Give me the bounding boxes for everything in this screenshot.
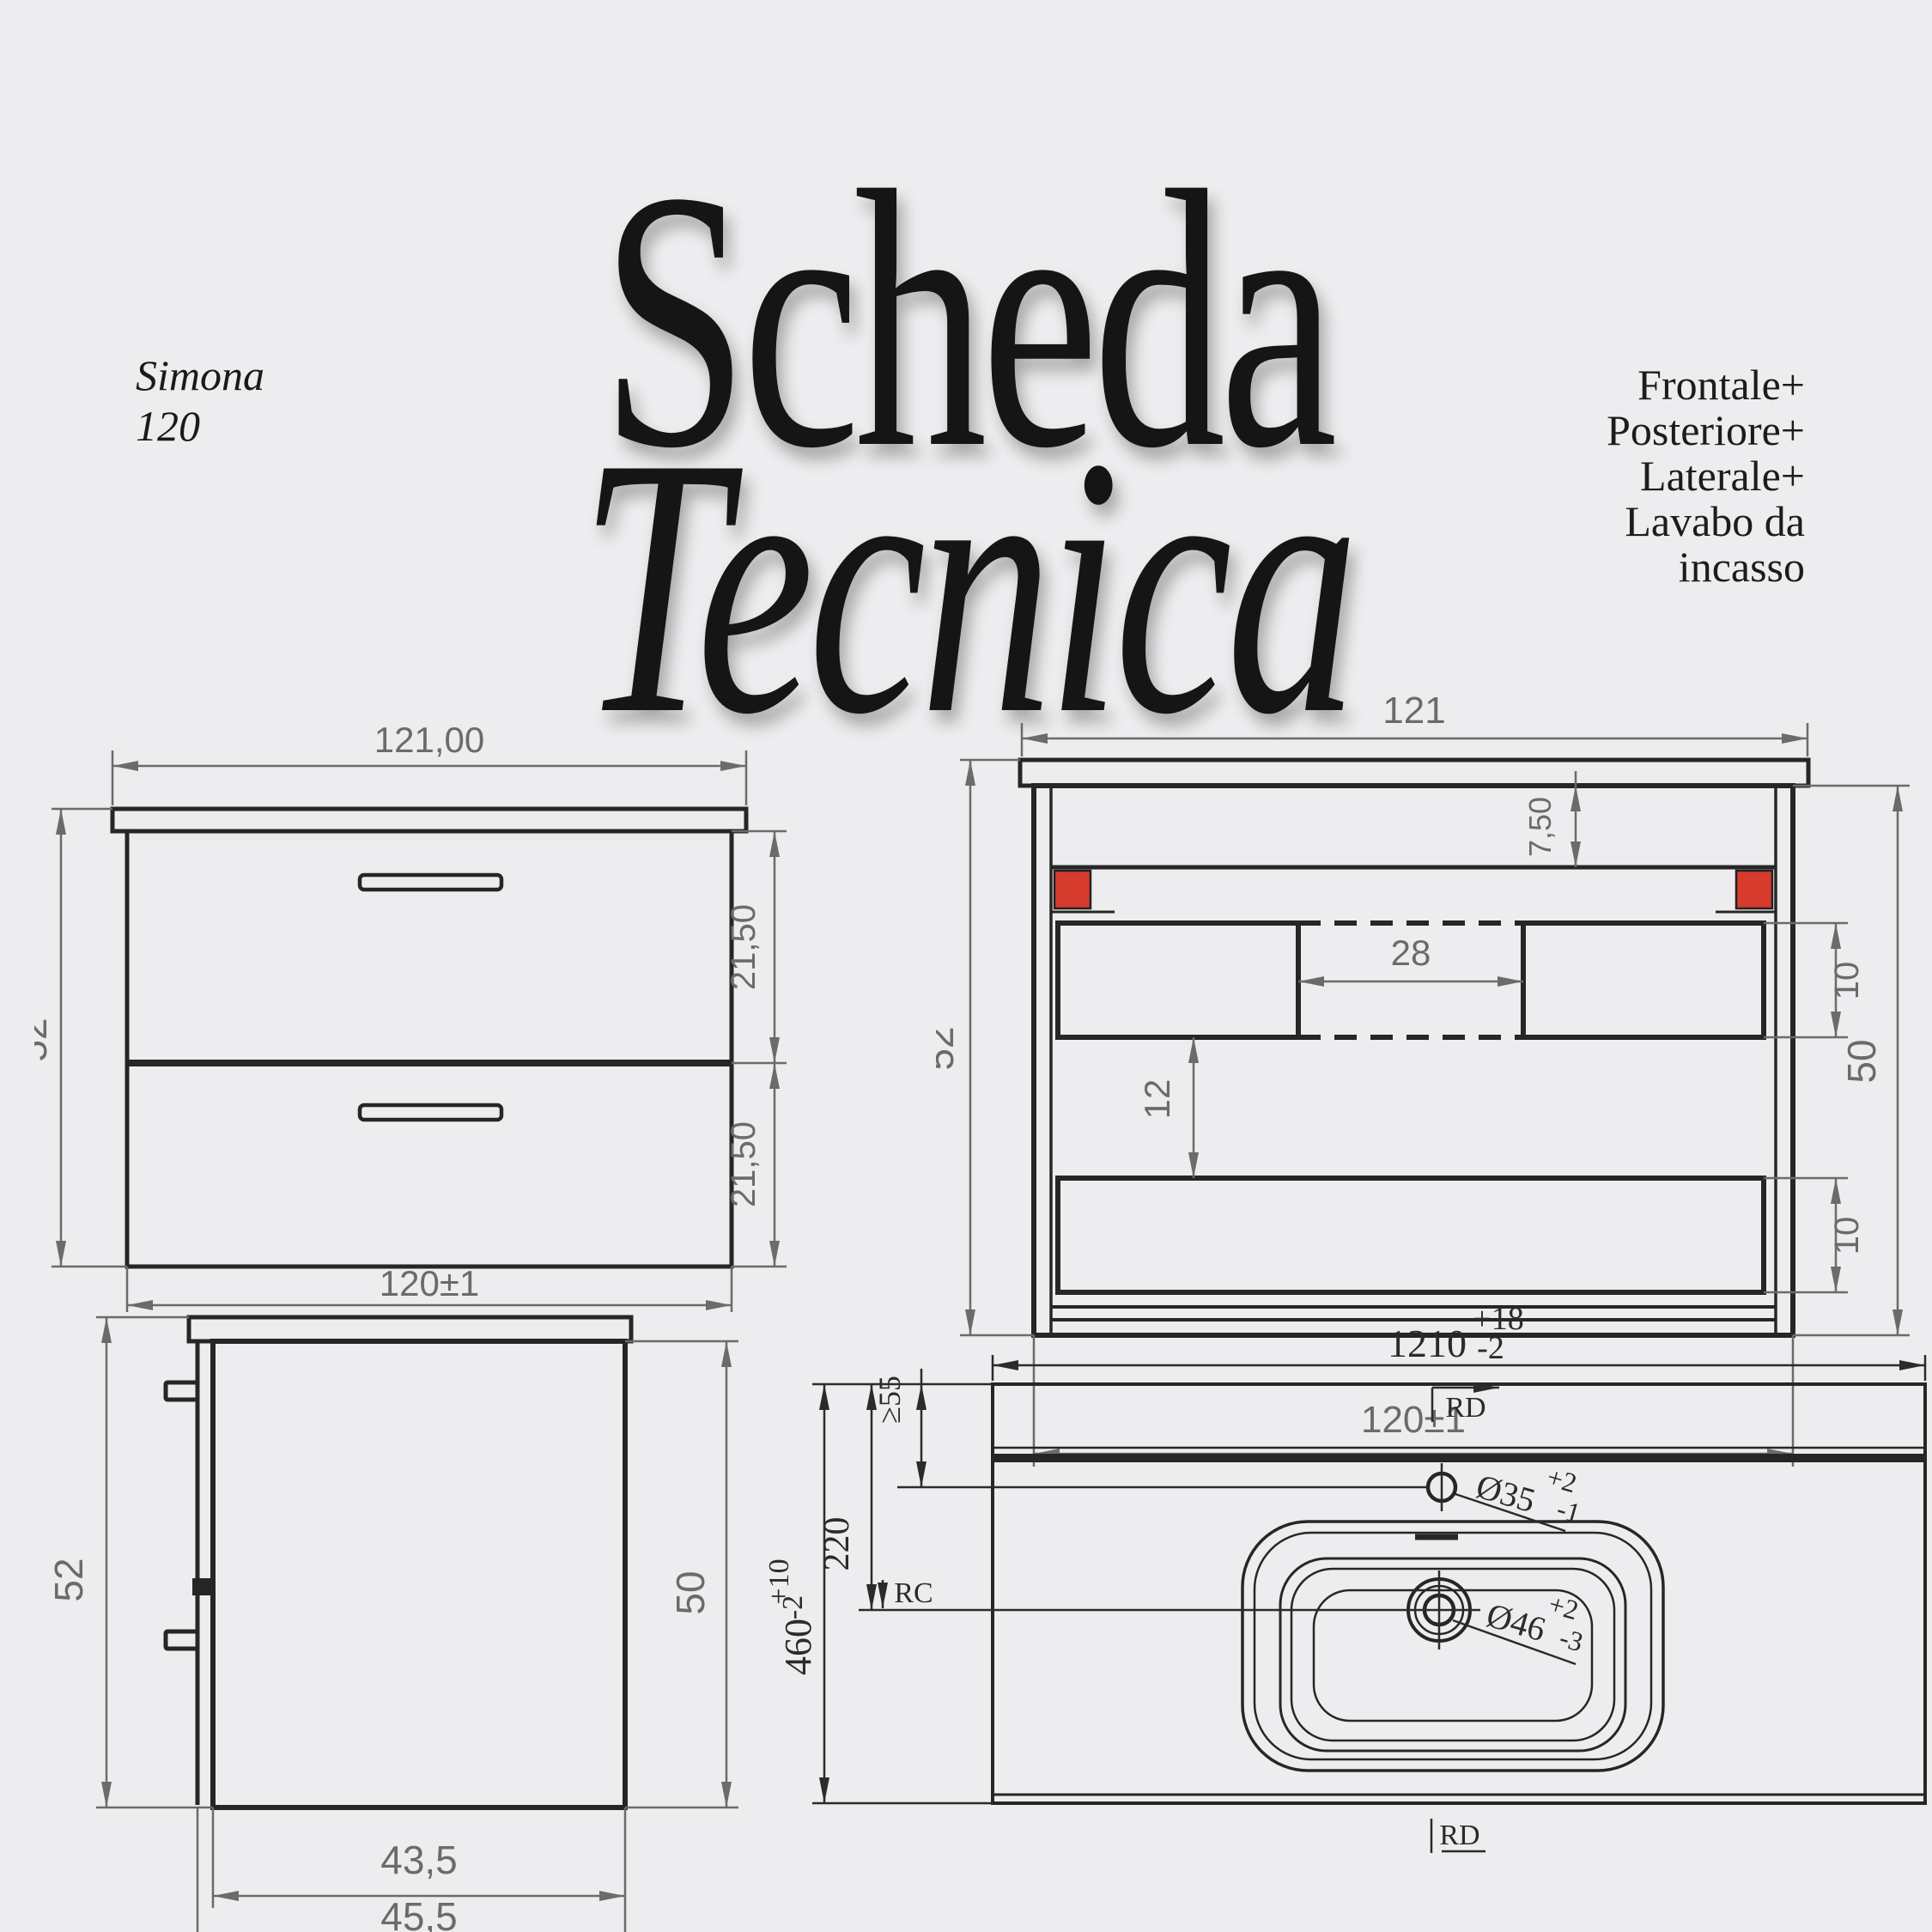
product-name: Simona: [136, 350, 264, 401]
faucet-tol-minus: -1: [1553, 1492, 1584, 1528]
top-datum-rd-bottom: RD: [1439, 1820, 1479, 1851]
rear-opening-top-left: [1058, 923, 1298, 1037]
side-dim-height-right: 50: [668, 1571, 713, 1614]
front-view-drawing: 121,00 52 21,50 21,50 120±1: [34, 713, 790, 1314]
front-handle-top: [360, 875, 501, 890]
views-line: Laterale+: [1607, 453, 1805, 499]
side-dim-depth-total: 45,5: [380, 1894, 458, 1932]
product-size: 120: [136, 401, 264, 452]
rear-dim-height-right: 50: [1839, 1039, 1884, 1083]
drain-tol-plus: +2: [1546, 1588, 1583, 1625]
rear-dim-width-top: 121: [1382, 690, 1445, 732]
side-cabinet-body: [213, 1341, 625, 1807]
top-dim-depth-tol-minus: -2: [777, 1595, 809, 1619]
drain-diameter-label: Ø46: [1482, 1595, 1550, 1649]
rear-dim-spacing: 12: [1137, 1079, 1177, 1120]
rear-dim-opening-bottom: 10: [1828, 1217, 1866, 1255]
views-line: Lavabo da: [1607, 499, 1805, 544]
top-view-drawing: 1210 +18 -2 RD ≥55 220 RC 460 +10 -2 Ø35…: [769, 1279, 1932, 1932]
rear-bracket-right: [1736, 871, 1772, 908]
front-handle-bottom: [360, 1105, 501, 1120]
rear-bracket-left: [1054, 871, 1091, 908]
views-line: Posteriore+: [1607, 408, 1805, 453]
side-countertop: [189, 1317, 631, 1341]
page: { "page": {"background": "#ededef"}, "he…: [0, 0, 1932, 1932]
rear-opening-bottom: [1058, 1178, 1764, 1292]
side-handle-bottom: [166, 1631, 197, 1649]
basin-geometry: [1242, 1463, 1663, 1771]
rear-dim-handle-gap: 28: [1391, 933, 1431, 973]
side-view-drawing: 52 50 43,5 45,5: [52, 1305, 756, 1932]
views-line: incasso: [1607, 544, 1805, 590]
front-cabinet-body: [127, 831, 732, 1267]
rear-cabinet-geometry: [1020, 760, 1808, 1335]
top-dim-width-tol-minus: -2: [1477, 1330, 1504, 1366]
rear-dim-height-left: 52: [936, 1026, 962, 1070]
side-dim-height-left: 52: [52, 1558, 91, 1601]
front-dim-height-left: 52: [34, 1018, 55, 1061]
front-dim-drawer-top: 21,50: [725, 904, 762, 990]
drain-tol-minus: -3: [1556, 1621, 1587, 1657]
front-countertop: [112, 809, 746, 831]
side-drawer-divider: [192, 1578, 215, 1595]
side-cabinet-geometry: [166, 1317, 631, 1807]
rear-dim-rail-height: 7,50: [1522, 797, 1558, 857]
top-dim-edge-min: ≥55: [872, 1376, 907, 1424]
faucet-diameter-label: Ø35: [1472, 1467, 1540, 1520]
front-dim-width-top: 121,00: [374, 720, 484, 760]
side-handle-top: [166, 1382, 197, 1400]
top-datum-rd-top: RD: [1445, 1392, 1485, 1424]
rear-opening-top-right: [1523, 923, 1764, 1037]
side-dimensions: 52 50 43,5 45,5: [52, 1317, 738, 1932]
top-dim-width: 1210: [1388, 1321, 1467, 1365]
front-cabinet-geometry: [112, 809, 746, 1267]
front-dim-width-bottom: 120±1: [380, 1263, 479, 1303]
rear-dim-opening-top: 10: [1828, 962, 1866, 1000]
top-ref-rc: RC: [894, 1577, 933, 1609]
side-dim-depth-body: 43,5: [380, 1838, 458, 1882]
product-label: Simona 120: [136, 350, 264, 452]
top-dim-depth: 460: [777, 1619, 819, 1675]
rear-countertop: [1020, 760, 1808, 786]
front-dim-drawer-bottom: 21,50: [725, 1121, 762, 1207]
views-included-label: Frontale+ Posteriore+ Laterale+ Lavabo d…: [1607, 362, 1805, 590]
views-line: Frontale+: [1607, 362, 1805, 408]
